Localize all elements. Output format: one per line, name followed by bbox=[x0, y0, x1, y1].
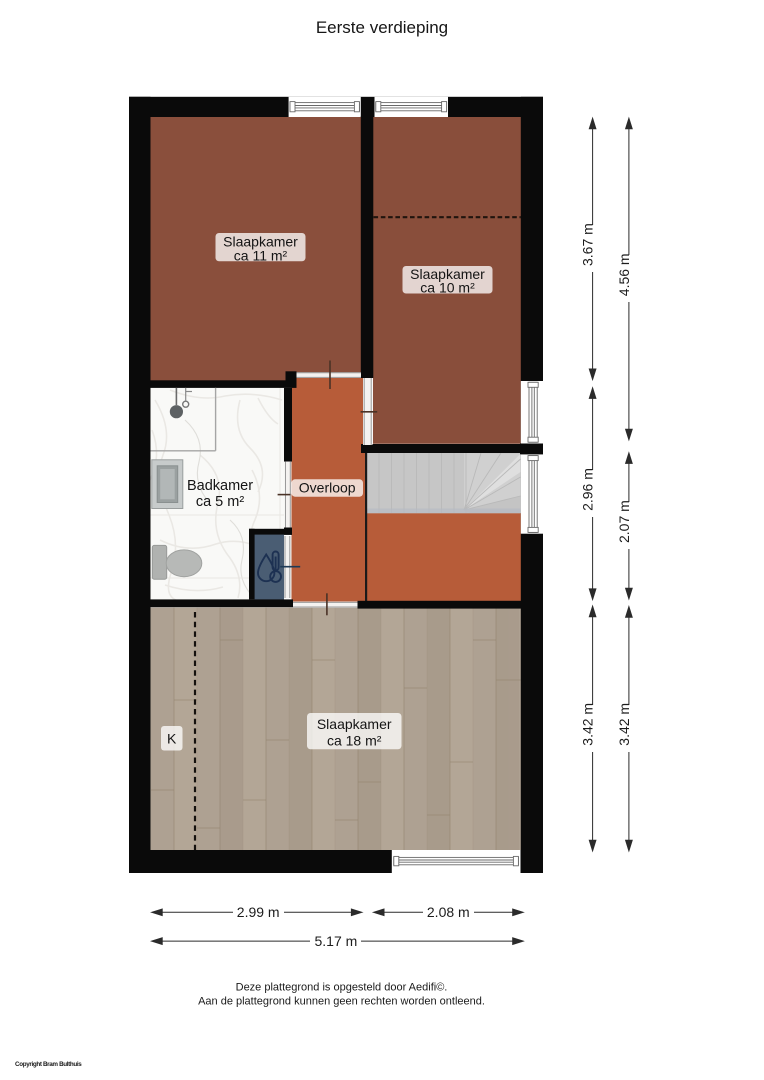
svg-text:2.96 m: 2.96 m bbox=[580, 468, 596, 511]
svg-text:3.67 m: 3.67 m bbox=[580, 223, 596, 266]
svg-text:ca 10 m²: ca 10 m² bbox=[420, 280, 475, 296]
svg-text:5.17 m: 5.17 m bbox=[314, 933, 357, 949]
svg-text:Badkamer: Badkamer bbox=[187, 478, 253, 494]
svg-text:ca 11 m²: ca 11 m² bbox=[234, 247, 288, 263]
svg-text:Aan de plattegrond kunnen geen: Aan de plattegrond kunnen geen rechten w… bbox=[198, 995, 485, 1007]
svg-text:ca 5 m²: ca 5 m² bbox=[196, 494, 245, 510]
svg-text:Slaapkamer: Slaapkamer bbox=[317, 716, 392, 732]
svg-text:Overloop: Overloop bbox=[299, 480, 356, 496]
svg-text:2.07 m: 2.07 m bbox=[616, 500, 632, 543]
svg-text:2.08 m: 2.08 m bbox=[427, 904, 470, 920]
svg-text:2.99 m: 2.99 m bbox=[237, 904, 280, 920]
svg-text:3.42 m: 3.42 m bbox=[580, 703, 596, 746]
svg-text:K: K bbox=[167, 731, 177, 747]
svg-text:4.56 m: 4.56 m bbox=[616, 253, 632, 296]
svg-text:3.42 m: 3.42 m bbox=[616, 703, 632, 746]
svg-text:Deze plattegrond is opgesteld: Deze plattegrond is opgesteld door Aedif… bbox=[236, 982, 448, 994]
svg-text:Copyright Bram Bulthuis: Copyright Bram Bulthuis bbox=[15, 1061, 82, 1068]
svg-text:Eerste verdieping: Eerste verdieping bbox=[316, 18, 448, 37]
svg-text:ca 18 m²: ca 18 m² bbox=[327, 733, 382, 749]
